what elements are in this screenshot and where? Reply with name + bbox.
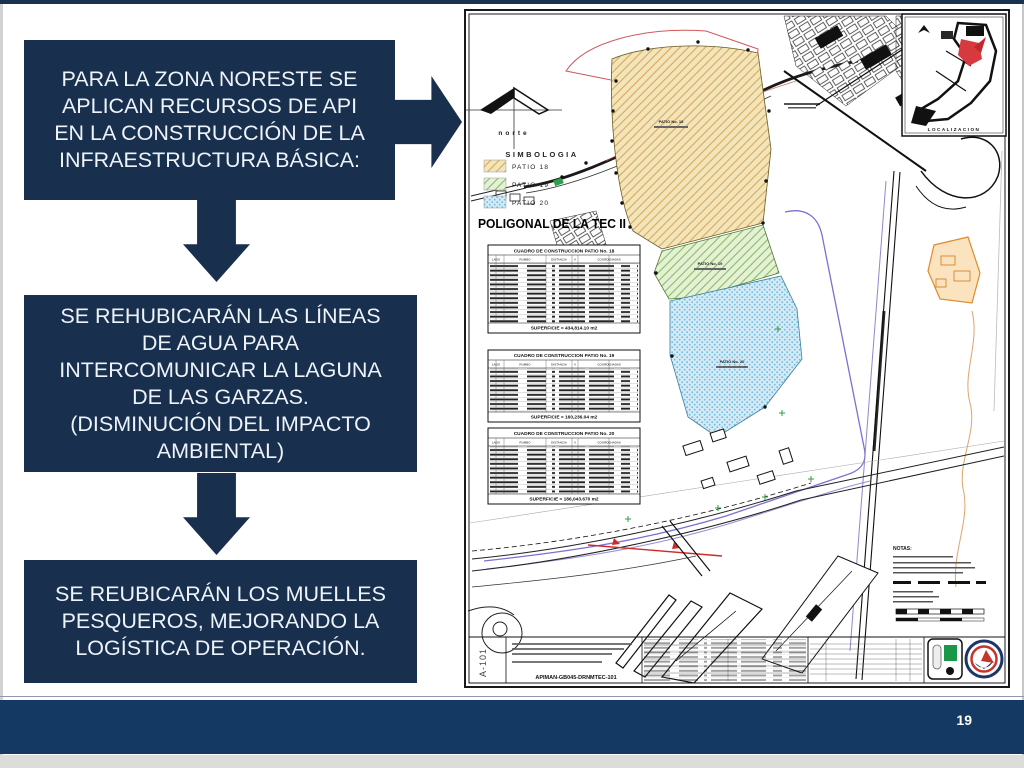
- th-coordenadas: COORDENADAS: [597, 363, 621, 367]
- th-coordenadas: COORDENADAS: [597, 441, 621, 445]
- footer-separator: [0, 696, 1024, 697]
- table-footer: SUPERFICIE = 186,043.670 m2: [529, 497, 599, 503]
- th-rumbo: RUMBO: [519, 258, 531, 262]
- th-lado: LADO: [492, 258, 501, 262]
- table-title: CUADRO DE CONSTRUCCION PATIO No. 20: [514, 431, 615, 437]
- table-title: CUADRO DE CONSTRUCCION PATIO No. 18: [514, 249, 615, 255]
- th-distancia: DISTANCIA: [551, 363, 567, 367]
- relocation-red-line: [588, 545, 722, 556]
- th-lado: LADO: [492, 441, 501, 445]
- scale-bar: [896, 609, 984, 621]
- legend-label-patio18: PATIO 18: [512, 164, 549, 171]
- th-lado: LADO: [492, 363, 501, 367]
- page-number: 19: [956, 712, 972, 728]
- construction-table-20: CUADRO DE CONSTRUCCION PATIO No. 20 LADO…: [488, 428, 640, 504]
- notes-title: NOTAS:: [893, 546, 912, 552]
- flow-box-3-text: SE REUBICARÁN LOS MUELLES PESQUEROS, MEJ…: [55, 581, 386, 662]
- north-arrow-icon: norte: [466, 88, 562, 149]
- location-inset: LOCALIZACION: [902, 14, 1006, 136]
- legend-swatch-patio20: [484, 196, 506, 208]
- arrow-right-icon: [394, 76, 462, 168]
- th-rumbo: RUMBO: [519, 441, 531, 445]
- legend-swatch-patio18: [484, 160, 506, 172]
- th-distancia: DISTANCIA: [551, 258, 567, 262]
- table-footer: SUPERFICIE = 160,236.04 m2: [531, 415, 598, 421]
- arrow-down-icon: [183, 473, 250, 555]
- bottom-bar: 19: [0, 700, 1024, 754]
- flow-box-2: SE REHUBICARÁN LAS LÍNEAS DE AGUA PARA I…: [24, 295, 417, 472]
- slide-left-edge: [0, 0, 3, 768]
- legend-label-patio20: PATIO 20: [512, 200, 549, 207]
- title-block: A-101 APIMAN-GB045-DRNMTEC-101: [469, 637, 1005, 683]
- patio-18-area: [611, 46, 771, 249]
- th-rumbo: RUMBO: [519, 363, 531, 367]
- construction-table-19: CUADRO DE CONSTRUCCION PATIO No. 19 LADO…: [488, 350, 640, 422]
- north-label: norte: [498, 130, 529, 137]
- flow-box-3: SE REUBICARÁN LOS MUELLES PESQUEROS, MEJ…: [24, 560, 417, 683]
- table-footer: SUPERFICIE = 434,814.10 m2: [531, 326, 598, 332]
- revision-table: [810, 639, 922, 681]
- flow-box-1-text: PARA LA ZONA NORESTE SE APLICAN RECURSOS…: [54, 66, 365, 174]
- patio-18-label: PATIO No. 18: [659, 119, 685, 124]
- sct-logo: [928, 639, 962, 679]
- th-distancia: DISTANCIA: [551, 441, 567, 445]
- legend-label-patio19: PATIO 19: [512, 182, 549, 189]
- legend-title: SIMBOLOGIA: [505, 150, 578, 159]
- construction-table-18: CUADRO DE CONSTRUCCION PATIO No. 18 LADO…: [488, 245, 640, 333]
- patio-19-label: PATIO No. 19: [698, 261, 724, 266]
- presentation-slide: PARA LA ZONA NORESTE SE APLICAN RECURSOS…: [0, 0, 1024, 768]
- notes-block: NOTAS:: [893, 546, 986, 621]
- patio-20-label: PATIO No. 20: [720, 359, 746, 364]
- site-plan-svg: PATIO No. 18 PATIO No. 19 PATIO No. 20: [466, 11, 1008, 686]
- flow-box-2-text: SE REHUBICARÁN LAS LÍNEAS DE AGUA PARA I…: [59, 303, 382, 465]
- site-plan-drawing: PATIO No. 18 PATIO No. 19 PATIO No. 20: [464, 9, 1010, 688]
- inset-label: LOCALIZACION: [928, 127, 981, 132]
- flow-box-1: PARA LA ZONA NORESTE SE APLICAN RECURSOS…: [24, 40, 395, 200]
- th-v: V: [574, 441, 576, 445]
- drawing-code: APIMAN-GB045-DRNMTEC-101: [535, 675, 616, 681]
- arrow-down-icon: [183, 200, 250, 282]
- legend-swatch-patio19: [484, 178, 506, 190]
- sheet-number: A-101: [478, 648, 488, 677]
- table-title: CUADRO DE CONSTRUCCION PATIO No. 19: [514, 353, 615, 359]
- buildings-cluster: [683, 429, 793, 489]
- api-logo: [966, 641, 1002, 677]
- th-v: V: [574, 363, 576, 367]
- bottom-gray-strip: [0, 755, 1024, 768]
- right-road: [856, 151, 1002, 680]
- top-accent-bar: [0, 0, 1024, 4]
- th-coordenadas: COORDENADAS: [597, 258, 621, 262]
- map-title: POLIGONAL DE LA TEC II: [478, 216, 626, 231]
- th-v: V: [574, 258, 576, 262]
